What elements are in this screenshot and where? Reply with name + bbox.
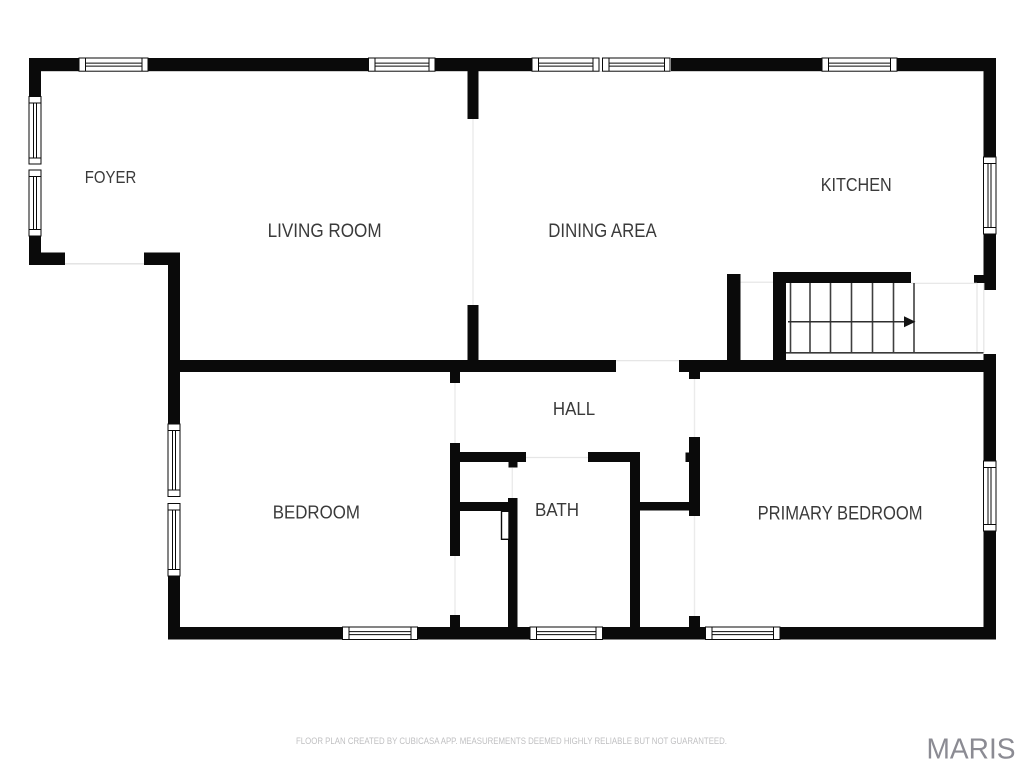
svg-text:LIVING ROOM: LIVING ROOM bbox=[268, 220, 382, 242]
svg-text:FOYER: FOYER bbox=[85, 167, 137, 187]
svg-text:PRIMARY BEDROOM: PRIMARY BEDROOM bbox=[758, 502, 923, 524]
svg-text:FLOOR PLAN CREATED BY CUBICASA: FLOOR PLAN CREATED BY CUBICASA APP. MEAS… bbox=[296, 736, 727, 746]
svg-text:BEDROOM: BEDROOM bbox=[273, 502, 360, 523]
svg-text:BATH: BATH bbox=[535, 499, 579, 520]
svg-text:DINING AREA: DINING AREA bbox=[548, 221, 657, 242]
svg-text:HALL: HALL bbox=[553, 398, 595, 419]
svg-text:KITCHEN: KITCHEN bbox=[821, 174, 892, 195]
svg-text:MARIS: MARIS bbox=[927, 733, 1016, 765]
